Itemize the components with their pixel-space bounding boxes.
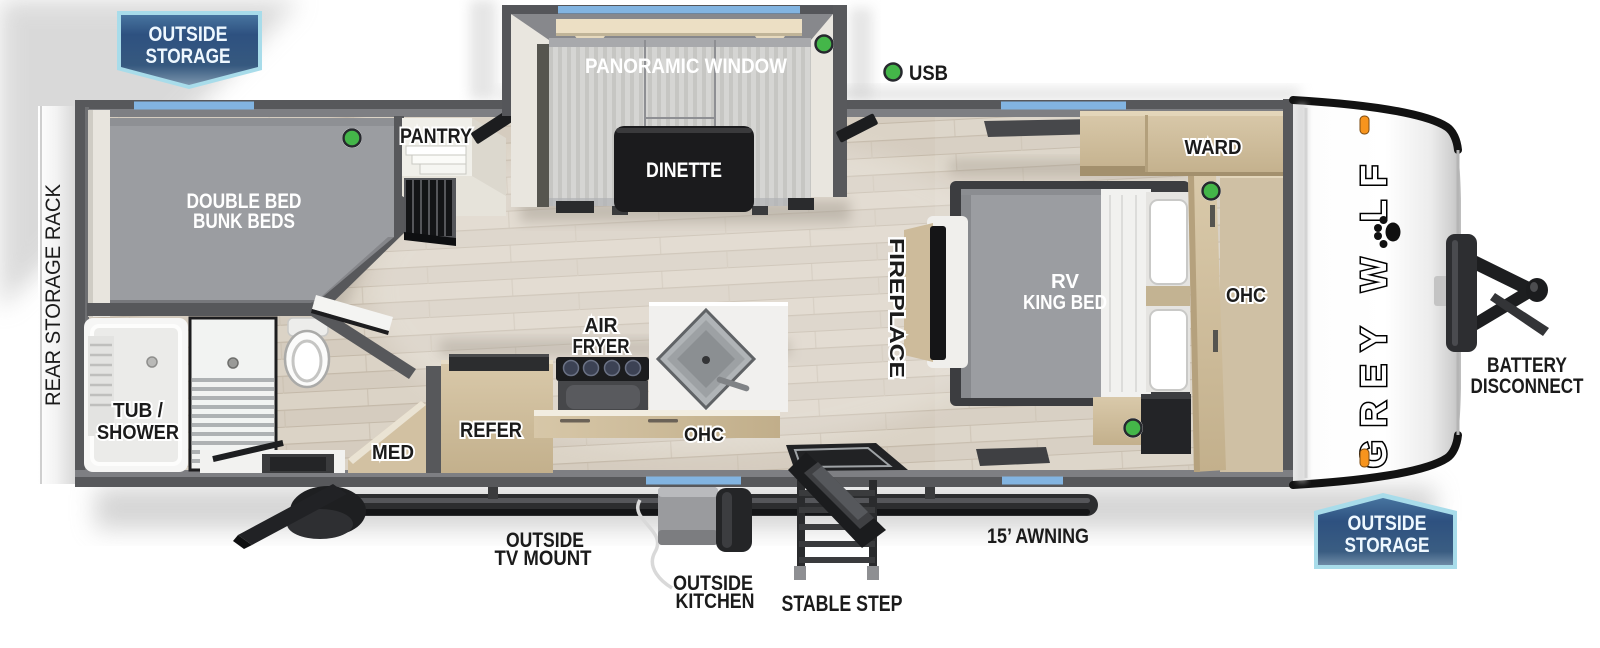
svg-text:USB: USB xyxy=(909,62,948,85)
svg-text:FIREPLACE: FIREPLACE xyxy=(885,238,907,378)
svg-text:BATTERY: BATTERY xyxy=(1487,354,1567,377)
svg-text:BUNK BEDS: BUNK BEDS xyxy=(193,210,295,233)
svg-text:GREY W LF: GREY W LF xyxy=(1353,152,1394,468)
svg-text:FRYER: FRYER xyxy=(573,336,630,358)
svg-text:REFER: REFER xyxy=(460,419,522,442)
svg-text:TUB /: TUB / xyxy=(113,400,163,422)
svg-text:OHC: OHC xyxy=(684,425,724,446)
svg-text:OHC: OHC xyxy=(1226,285,1266,307)
svg-text:STORAGE: STORAGE xyxy=(146,45,231,68)
svg-text:PANORAMIC WINDOW: PANORAMIC WINDOW xyxy=(585,55,787,78)
svg-text:OUTSIDE: OUTSIDE xyxy=(149,23,228,46)
svg-text:AIR: AIR xyxy=(585,315,619,337)
svg-text:PANTRY: PANTRY xyxy=(400,125,472,148)
svg-text:REAR STORAGE RACK: REAR STORAGE RACK xyxy=(42,184,65,406)
svg-text:STORAGE: STORAGE xyxy=(1345,534,1430,557)
svg-text:KING BED: KING BED xyxy=(1023,292,1107,314)
svg-text:OUTSIDE: OUTSIDE xyxy=(1348,512,1427,535)
svg-text:15’ AWNING: 15’ AWNING xyxy=(987,525,1089,548)
svg-text:STABLE STEP: STABLE STEP xyxy=(782,591,903,616)
svg-text:SHOWER: SHOWER xyxy=(97,422,180,444)
svg-text:TV MOUNT: TV MOUNT xyxy=(495,547,592,570)
svg-text:RV: RV xyxy=(1051,271,1080,293)
svg-text:KITCHEN: KITCHEN xyxy=(676,590,755,613)
svg-text:WARD: WARD xyxy=(1185,137,1242,159)
svg-text:MED: MED xyxy=(372,442,414,464)
svg-text:DISCONNECT: DISCONNECT xyxy=(1471,375,1584,398)
svg-text:DINETTE: DINETTE xyxy=(646,159,722,182)
